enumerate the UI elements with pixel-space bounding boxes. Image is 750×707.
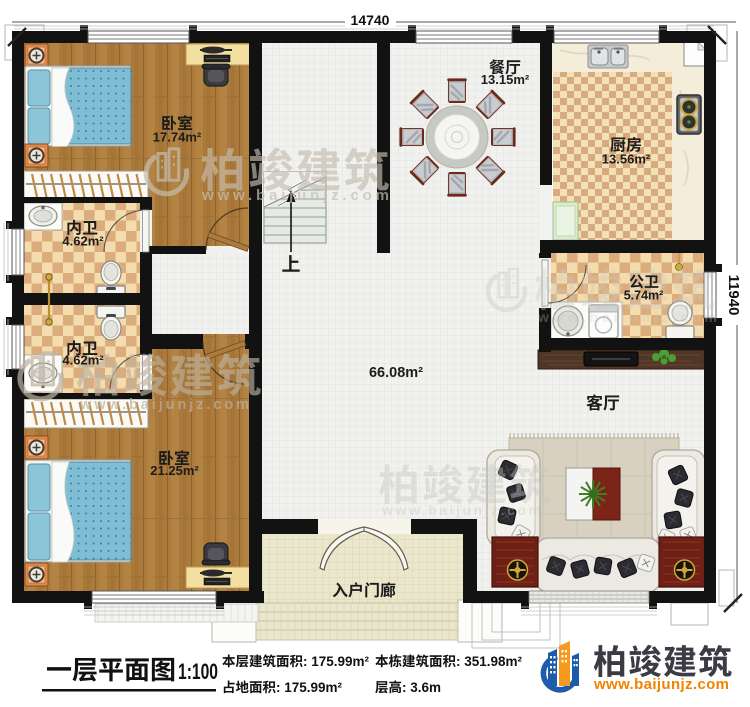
svg-text:21.25m²: 21.25m² [150, 463, 199, 478]
svg-text:www.baijunjz.com: www.baijunjz.com [593, 676, 730, 693]
svg-text:: 175.99m²: : 175.99m² [276, 680, 343, 695]
svg-text:17.74m²: 17.74m² [153, 130, 202, 145]
svg-text:4.62m²: 4.62m² [62, 234, 104, 249]
svg-text:: 3.6m: : 3.6m [402, 680, 441, 695]
svg-text:: 351.98m²: : 351.98m² [456, 654, 523, 669]
svg-text:1:100: 1:100 [178, 659, 218, 684]
svg-text:13.56m²: 13.56m² [602, 152, 651, 167]
svg-text:13.15m²: 13.15m² [481, 72, 530, 87]
svg-text:14740: 14740 [351, 12, 390, 28]
svg-text:: 175.99m²: : 175.99m² [303, 654, 370, 669]
svg-text:11940: 11940 [725, 275, 742, 316]
svg-text:4.62m²: 4.62m² [62, 353, 104, 368]
svg-text:66.08m²: 66.08m² [369, 365, 423, 381]
svg-text:5.74m²: 5.74m² [624, 289, 664, 303]
